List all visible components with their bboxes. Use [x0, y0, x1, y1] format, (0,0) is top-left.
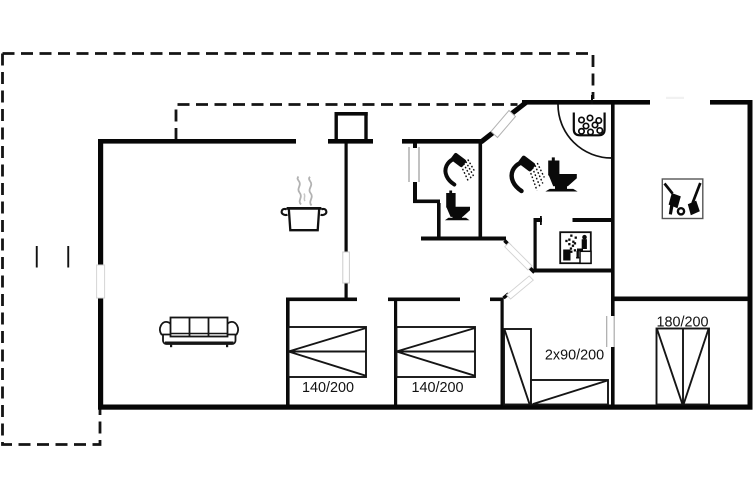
svg-text:140/200: 140/200 — [302, 380, 354, 396]
svg-text:2x90/200: 2x90/200 — [545, 348, 604, 364]
svg-text:140/200: 140/200 — [411, 380, 463, 396]
svg-text:180/200: 180/200 — [656, 315, 708, 331]
